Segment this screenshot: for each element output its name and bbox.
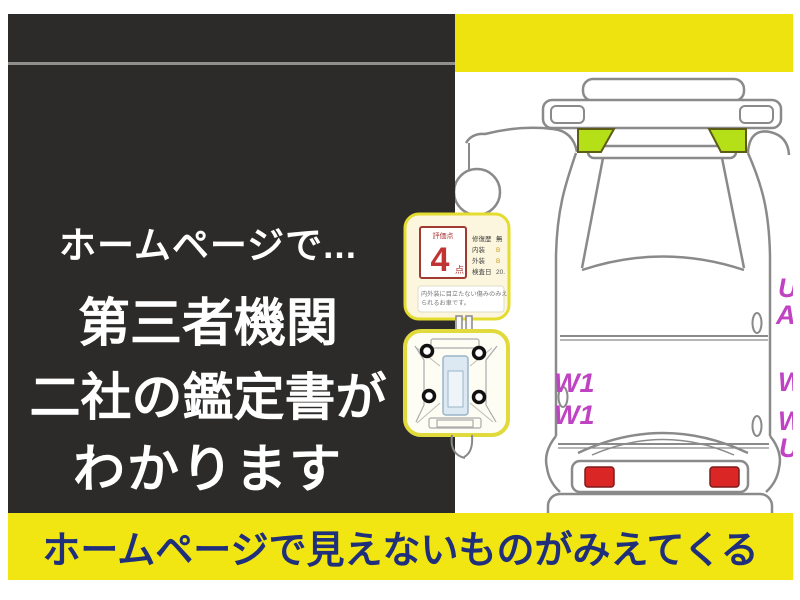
- right-rear-handle-icon: [753, 416, 762, 436]
- mount-front-left: [422, 346, 433, 357]
- headline-line-4: わかります: [8, 444, 408, 496]
- right-a-pillar: [722, 158, 744, 268]
- connector-arc-2: [464, 435, 472, 457]
- banner-text: ホームページで見えないものがみえてくる: [42, 519, 758, 574]
- inspection-cards-svg: 評価点 4 点 修復歴 無 内装 B 外装 B 検査日 20. 内外装に目立たな…: [400, 210, 515, 462]
- promo-slide: ホームページで... 第三者機関 二社の鑑定書が わかります: [0, 0, 800, 600]
- front-left-wheel: [455, 169, 500, 215]
- score-value: 4: [431, 241, 450, 279]
- right-door-handle-icon: [753, 313, 762, 333]
- mount-rear-right: [474, 392, 485, 403]
- field-label-2: 内装: [472, 245, 486, 254]
- right-body-edge: [748, 153, 770, 436]
- code-w-mid: W: [778, 367, 793, 397]
- mount-rear-left: [424, 391, 435, 402]
- code-u-bottom: U: [779, 433, 793, 463]
- headline-line-3: 二社の鑑定書が: [8, 372, 408, 423]
- rear-left-fender: [546, 436, 560, 492]
- rear-bumper: [548, 494, 772, 513]
- field-value-1: 無: [496, 234, 503, 243]
- right-fender-line: [748, 131, 789, 155]
- top-dark-bar: [8, 14, 455, 62]
- front-bumper: [583, 79, 744, 101]
- code-w1-upper: W1: [554, 368, 595, 398]
- score-label: 評価点: [433, 231, 454, 240]
- code-u-top: U: [778, 273, 793, 303]
- field-value-2: B: [496, 247, 500, 254]
- field-label-1: 修復歴: [472, 234, 492, 243]
- left-a-pillar: [582, 158, 603, 268]
- score-unit: 点: [455, 265, 464, 275]
- code-a: A: [775, 300, 793, 330]
- top-yellow-band: [455, 14, 793, 72]
- code-w1-lower: W1: [554, 400, 595, 430]
- note-line-2: られるお車です。: [421, 299, 470, 307]
- rear-window-arc-inner: [592, 440, 734, 456]
- inspection-cards: 評価点 4 点 修復歴 無 内装 B 外装 B 検査日 20. 内外装に目立たな…: [400, 210, 515, 462]
- field-label-4: 検査日: [472, 267, 492, 276]
- bottom-banner: ホームページで見えないものがみえてくる: [8, 513, 793, 580]
- connector-arc-1: [452, 435, 465, 458]
- field-value-3: B: [496, 258, 500, 265]
- tail-light-left: [585, 467, 614, 487]
- left-fender-line: [466, 128, 577, 152]
- underbody-tunnel-inner: [448, 371, 463, 407]
- headline-panel: ホームページで... 第三者機関 二社の鑑定書が わかります: [8, 65, 455, 513]
- field-label-3: 外装: [472, 256, 486, 265]
- headline-line-1: ホームページで...: [8, 227, 408, 264]
- tail-light-right: [710, 467, 739, 487]
- headline-line-2: 第三者機関: [8, 298, 408, 350]
- mount-front-right: [474, 348, 485, 359]
- card-bottom-connector: [452, 435, 473, 458]
- field-value-4: 20.: [496, 269, 505, 276]
- note-line-1: 内外装に目立たない傷みのみえ: [421, 290, 508, 298]
- score-note-box: [418, 286, 504, 312]
- windshield-arc: [582, 257, 744, 271]
- code-w-low: W: [778, 406, 793, 436]
- cowl-bar: [588, 146, 736, 158]
